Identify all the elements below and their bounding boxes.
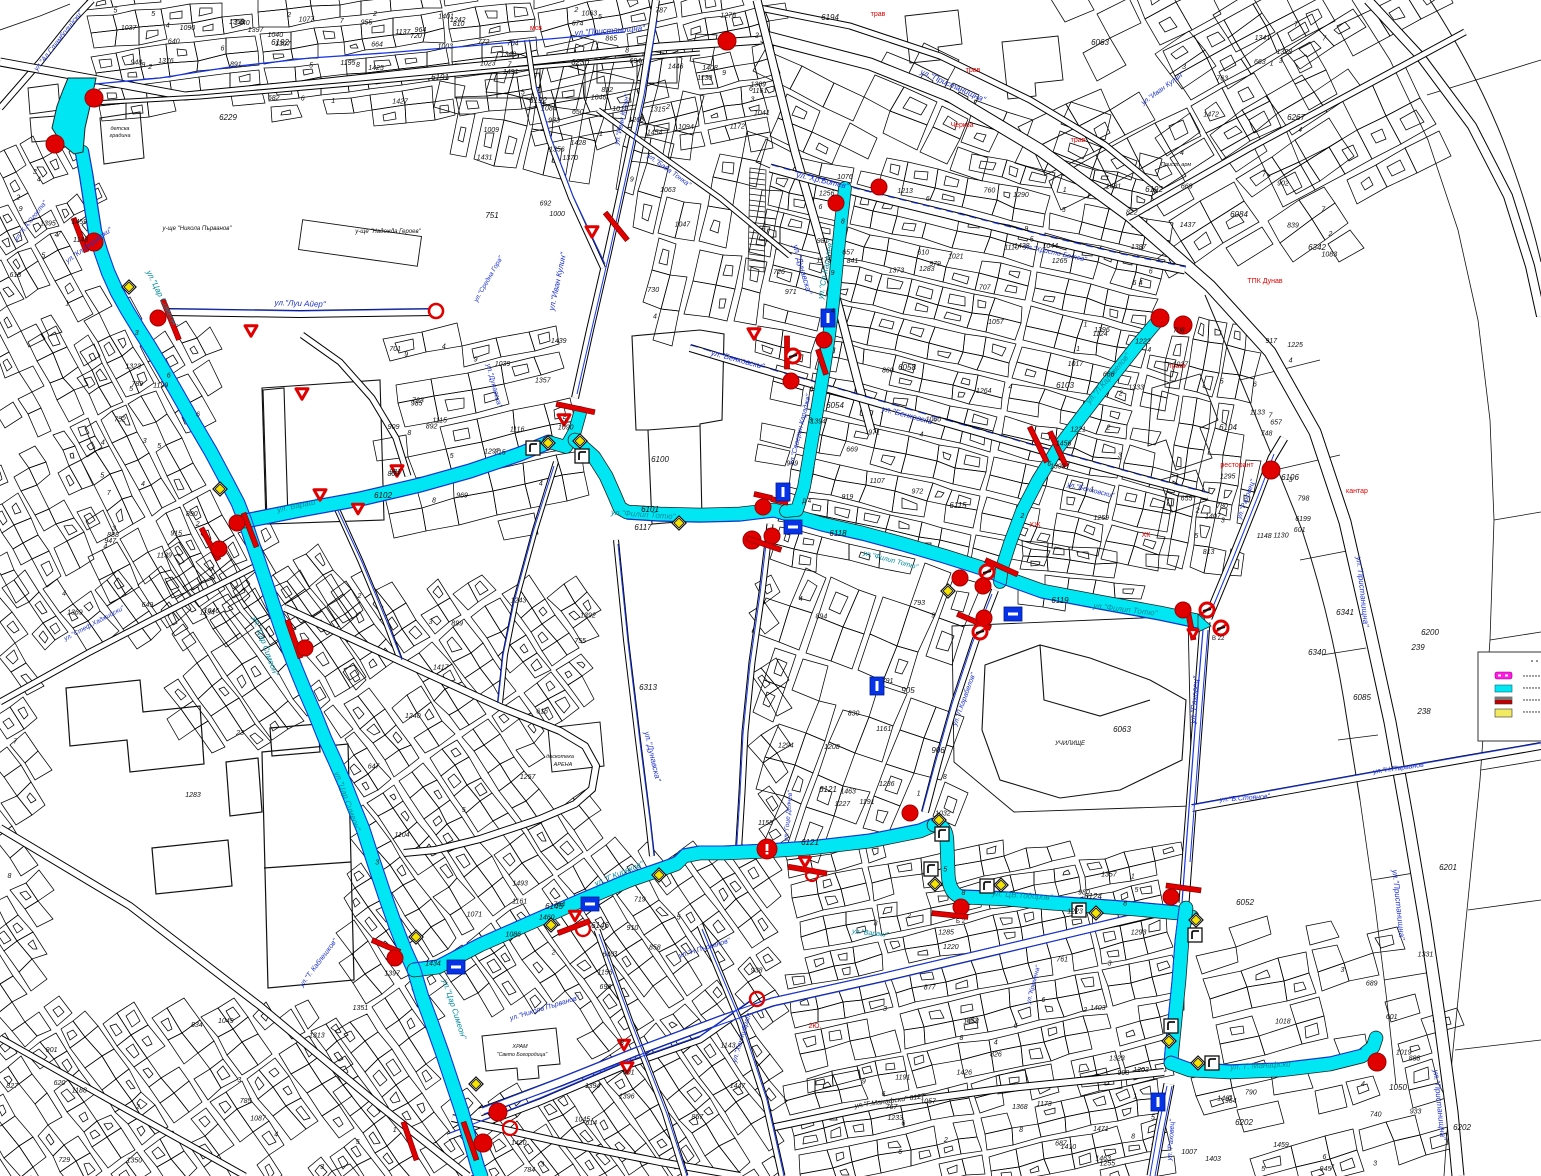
svg-text:8: 8 <box>407 430 411 437</box>
svg-text:8: 8 <box>432 497 436 504</box>
svg-text:5: 5 <box>309 63 313 70</box>
svg-text:1057: 1057 <box>988 319 1005 326</box>
svg-text:1133: 1133 <box>1250 410 1265 417</box>
svg-text:933: 933 <box>1410 1108 1422 1115</box>
svg-text:1143: 1143 <box>73 237 88 244</box>
svg-text:1397: 1397 <box>384 970 401 977</box>
svg-text:3: 3 <box>33 169 37 176</box>
svg-text:4: 4 <box>442 343 446 350</box>
svg-text:1401: 1401 <box>438 13 454 20</box>
svg-text:1063: 1063 <box>660 187 676 194</box>
svg-text:772: 772 <box>478 39 490 46</box>
svg-text:1431: 1431 <box>477 154 493 161</box>
svg-text:1348: 1348 <box>500 51 516 58</box>
svg-text:1173: 1173 <box>1037 1101 1052 1108</box>
svg-text:650: 650 <box>572 109 584 116</box>
svg-text:1191: 1191 <box>859 799 874 806</box>
svg-text:6202: 6202 <box>1235 1118 1253 1127</box>
svg-text:6: 6 <box>926 196 930 203</box>
svg-text:707: 707 <box>979 285 992 292</box>
svg-text:798: 798 <box>1298 495 1310 502</box>
svg-text:1394: 1394 <box>585 1083 601 1090</box>
svg-text:"Свето Богородица": "Свето Богородица" <box>497 1052 549 1058</box>
svg-text:6: 6 <box>1253 382 1257 389</box>
svg-text:4: 4 <box>62 591 66 598</box>
svg-text:1018: 1018 <box>1275 1019 1291 1026</box>
svg-text:760: 760 <box>984 187 996 194</box>
svg-text:8: 8 <box>620 1040 624 1047</box>
svg-text:4: 4 <box>101 440 105 447</box>
svg-text:901: 901 <box>46 1047 58 1054</box>
svg-text:917: 917 <box>1265 338 1278 345</box>
svg-text:1130: 1130 <box>697 75 712 82</box>
svg-text:1293: 1293 <box>1131 930 1147 937</box>
svg-text:1158: 1158 <box>758 820 773 827</box>
svg-text:трав: трав <box>871 11 886 18</box>
svg-text:858: 858 <box>649 944 661 951</box>
svg-text:5: 5 <box>521 90 525 97</box>
svg-text:6102: 6102 <box>374 491 392 500</box>
svg-text:1259: 1259 <box>1093 515 1109 522</box>
svg-text:1264: 1264 <box>976 388 992 395</box>
svg-text:1221: 1221 <box>1070 426 1086 433</box>
svg-text:1294: 1294 <box>778 742 794 749</box>
svg-text:901: 901 <box>623 1069 635 1076</box>
svg-text:669: 669 <box>1181 183 1193 190</box>
svg-text:мсв: мсв <box>530 25 542 32</box>
svg-text:964: 964 <box>415 27 427 34</box>
svg-text:614: 614 <box>585 1120 597 1127</box>
svg-text:6: 6 <box>1149 269 1153 276</box>
svg-text:1104: 1104 <box>394 832 409 839</box>
svg-text:1134: 1134 <box>200 610 215 617</box>
svg-text:1358: 1358 <box>229 19 245 26</box>
svg-text:1439: 1439 <box>551 338 567 345</box>
svg-text:6054: 6054 <box>826 401 844 410</box>
svg-text:5: 5 <box>100 473 104 480</box>
svg-text:1023: 1023 <box>480 60 496 67</box>
svg-text:3: 3 <box>540 1161 544 1168</box>
svg-text:899: 899 <box>451 620 463 627</box>
svg-text:980: 980 <box>1078 890 1090 897</box>
svg-text:3: 3 <box>751 96 755 103</box>
svg-text:852: 852 <box>967 1017 979 1024</box>
svg-text:981: 981 <box>389 469 401 476</box>
svg-text:1350: 1350 <box>127 1158 143 1165</box>
svg-text:764: 764 <box>553 901 565 908</box>
svg-text:1222: 1222 <box>1135 339 1151 346</box>
svg-text:6084: 6084 <box>1230 210 1248 219</box>
svg-text:6: 6 <box>220 46 224 53</box>
svg-text:9: 9 <box>831 270 835 277</box>
svg-text:1265: 1265 <box>1052 258 1068 265</box>
svg-text:1446: 1446 <box>668 64 684 71</box>
svg-text:1260: 1260 <box>628 117 644 124</box>
svg-text:1046: 1046 <box>591 95 607 102</box>
svg-text:1256: 1256 <box>819 191 835 198</box>
svg-text:1463: 1463 <box>840 788 856 795</box>
svg-text:6192: 6192 <box>1145 185 1163 194</box>
svg-text:689: 689 <box>1366 981 1378 988</box>
svg-text:2: 2 <box>1082 1007 1087 1014</box>
svg-text:4: 4 <box>141 481 145 488</box>
svg-text:971: 971 <box>868 429 880 436</box>
svg-text:998: 998 <box>1118 1070 1130 1077</box>
svg-text:2: 2 <box>1327 231 1332 238</box>
svg-text:1328: 1328 <box>1277 49 1293 56</box>
svg-text:5: 5 <box>1261 1166 1265 1173</box>
svg-text:938: 938 <box>751 968 763 975</box>
svg-text:839: 839 <box>1287 222 1299 229</box>
svg-text:664: 664 <box>371 41 383 48</box>
svg-text:1172: 1172 <box>730 124 745 131</box>
svg-text:785: 785 <box>240 1098 252 1105</box>
svg-text:740: 740 <box>1370 1112 1382 1119</box>
svg-text:3: 3 <box>808 417 812 424</box>
svg-text:1333: 1333 <box>1128 385 1144 392</box>
svg-text:2: 2 <box>573 7 578 14</box>
svg-text:6201: 6201 <box>1439 863 1457 872</box>
svg-text:1370: 1370 <box>562 155 578 162</box>
svg-text:6: 6 <box>1133 280 1137 287</box>
svg-text:1295: 1295 <box>1220 473 1236 480</box>
svg-text:1: 1 <box>917 790 921 797</box>
svg-text:9: 9 <box>19 206 23 213</box>
svg-text:1290: 1290 <box>1013 192 1029 199</box>
svg-text:1225: 1225 <box>1287 342 1303 349</box>
svg-text:720: 720 <box>410 33 422 40</box>
svg-text:5: 5 <box>1194 533 1198 540</box>
svg-text:1019: 1019 <box>1396 1049 1412 1056</box>
svg-text:2: 2 <box>551 950 556 957</box>
svg-text:1425: 1425 <box>368 65 384 72</box>
svg-text:6: 6 <box>196 412 200 419</box>
svg-text:6229: 6229 <box>219 113 237 122</box>
svg-text:890: 890 <box>186 511 198 518</box>
svg-text:В 22: В 22 <box>1212 636 1225 642</box>
svg-text:3: 3 <box>1373 1160 1377 1167</box>
svg-text:4: 4 <box>1147 347 1151 354</box>
svg-text:1438: 1438 <box>1014 243 1030 250</box>
svg-text:5: 5 <box>462 807 466 814</box>
svg-text:6: 6 <box>301 95 305 102</box>
svg-text:1240: 1240 <box>405 713 421 720</box>
svg-text:8: 8 <box>625 48 629 55</box>
svg-text:трав: трав <box>1071 137 1086 144</box>
svg-text:841: 841 <box>847 258 859 265</box>
svg-text:1161: 1161 <box>512 898 527 905</box>
svg-text:6052: 6052 <box>1236 898 1254 907</box>
svg-text:822: 822 <box>1126 209 1138 216</box>
svg-text:5: 5 <box>598 14 602 21</box>
svg-text:6230: 6230 <box>571 58 589 67</box>
svg-text:2: 2 <box>754 33 759 40</box>
svg-text:6104: 6104 <box>1219 423 1237 432</box>
svg-text:6313: 6313 <box>639 683 657 692</box>
svg-text:2: 2 <box>665 104 670 111</box>
svg-text:694: 694 <box>629 58 641 65</box>
svg-text:детска: детска <box>111 126 130 132</box>
svg-text:239: 239 <box>1410 643 1425 652</box>
svg-text:2: 2 <box>1106 424 1111 431</box>
svg-text:919: 919 <box>842 494 854 501</box>
svg-text:1233: 1233 <box>887 1115 903 1122</box>
svg-text:3: 3 <box>320 1164 324 1171</box>
svg-text:6: 6 <box>1041 997 1045 1004</box>
svg-text:ул."Луи Айер": ул."Луи Айер" <box>273 298 327 309</box>
svg-text:1057: 1057 <box>920 1099 937 1106</box>
svg-text:1227: 1227 <box>835 801 852 808</box>
svg-text:1426: 1426 <box>956 1069 972 1076</box>
svg-text:у-ще "Надежда Героев": у-ще "Надежда Героев" <box>354 229 421 235</box>
svg-text:5: 5 <box>677 914 681 921</box>
svg-text:2: 2 <box>1195 508 1200 515</box>
svg-text:3: 3 <box>237 1077 241 1084</box>
svg-text:1090: 1090 <box>558 424 574 431</box>
svg-text:1139: 1139 <box>157 553 172 560</box>
svg-text:891: 891 <box>230 62 242 69</box>
svg-text:2: 2 <box>1118 390 1123 397</box>
svg-text:3: 3 <box>375 860 379 867</box>
svg-text:238: 238 <box>1416 707 1431 716</box>
svg-text:5: 5 <box>356 1139 360 1146</box>
svg-text:1223: 1223 <box>1067 908 1083 915</box>
svg-text:6202: 6202 <box>1453 1123 1471 1132</box>
svg-text:1: 1 <box>65 301 69 308</box>
svg-text:948: 948 <box>130 60 142 67</box>
svg-text:657: 657 <box>842 250 855 257</box>
svg-text:1307: 1307 <box>275 41 292 48</box>
svg-text:1060: 1060 <box>926 416 942 423</box>
svg-text:2: 2 <box>906 913 911 920</box>
svg-text:905: 905 <box>901 686 915 695</box>
svg-text:1427: 1427 <box>392 99 409 106</box>
svg-text:2: 2 <box>135 1104 140 1111</box>
svg-text:1434: 1434 <box>425 961 441 968</box>
svg-text:6: 6 <box>1228 1095 1232 1102</box>
svg-text:6101: 6101 <box>641 505 659 514</box>
svg-text:1: 1 <box>1090 487 1094 494</box>
svg-text:4: 4 <box>653 314 657 321</box>
svg-text:3: 3 <box>613 951 617 958</box>
svg-text:601: 601 <box>1294 527 1306 534</box>
svg-text:Прист. арм: Прист. арм <box>1161 162 1191 168</box>
svg-text:3: 3 <box>429 619 433 626</box>
svg-text:4: 4 <box>1008 384 1012 391</box>
svg-text:4: 4 <box>831 308 835 315</box>
svg-text:8: 8 <box>1019 1127 1023 1134</box>
svg-text:1315: 1315 <box>650 107 666 114</box>
svg-text:2: 2 <box>356 593 361 600</box>
svg-text:4: 4 <box>37 176 41 183</box>
svg-text:6200: 6200 <box>1421 628 1439 637</box>
svg-text:708: 708 <box>1173 328 1185 335</box>
svg-text:1130: 1130 <box>1274 532 1289 539</box>
svg-text:1032: 1032 <box>935 811 951 818</box>
svg-text:755: 755 <box>574 638 586 645</box>
svg-text:674: 674 <box>572 20 584 27</box>
svg-text:1472: 1472 <box>1203 112 1219 119</box>
svg-text:1285: 1285 <box>938 929 954 936</box>
svg-text:827: 827 <box>6 1083 19 1090</box>
svg-text:1039: 1039 <box>495 361 511 368</box>
svg-text:3: 3 <box>1108 961 1112 968</box>
svg-text:649: 649 <box>142 602 154 609</box>
svg-text:830: 830 <box>848 711 860 718</box>
svg-text:1063: 1063 <box>582 10 598 17</box>
svg-text:дискотека: дискотека <box>546 754 574 760</box>
svg-text:1175: 1175 <box>816 258 831 265</box>
svg-text:1188: 1188 <box>72 1088 87 1095</box>
svg-text:1208: 1208 <box>824 744 840 751</box>
svg-text:ТПК Дунав: ТПК Дунав <box>1247 278 1282 285</box>
svg-text:640: 640 <box>168 39 180 46</box>
svg-text:1403: 1403 <box>1090 1005 1106 1012</box>
svg-text:1137: 1137 <box>395 29 411 36</box>
svg-text:704: 704 <box>507 41 519 48</box>
svg-text:1220: 1220 <box>943 944 959 951</box>
svg-text:1369: 1369 <box>67 610 83 617</box>
svg-text:696: 696 <box>600 984 612 991</box>
svg-text:2: 2 <box>1019 513 1024 520</box>
svg-text:1410: 1410 <box>1061 1144 1077 1151</box>
svg-text:3: 3 <box>1182 64 1186 71</box>
svg-text:657: 657 <box>1270 419 1283 426</box>
svg-text:971: 971 <box>785 289 797 296</box>
svg-text:1007: 1007 <box>1181 1149 1198 1156</box>
svg-text:1408: 1408 <box>702 65 718 72</box>
svg-text:1351: 1351 <box>353 1005 369 1012</box>
svg-text:1323: 1323 <box>125 363 141 370</box>
svg-text:6341: 6341 <box>1336 608 1354 617</box>
svg-text:9: 9 <box>404 351 408 358</box>
svg-text:8: 8 <box>943 774 947 781</box>
svg-text:723: 723 <box>412 397 424 404</box>
svg-text:1398: 1398 <box>1050 464 1066 471</box>
svg-text:6192: 6192 <box>529 96 547 105</box>
svg-text:4: 4 <box>539 481 543 488</box>
svg-text:1323: 1323 <box>1109 1055 1125 1062</box>
svg-text:1396: 1396 <box>619 1094 635 1101</box>
svg-text:857: 857 <box>692 1114 705 1121</box>
svg-text:1437: 1437 <box>1180 222 1197 229</box>
svg-text:790: 790 <box>1245 1089 1257 1096</box>
svg-text:8: 8 <box>1123 900 1127 907</box>
svg-text:6100: 6100 <box>651 455 669 464</box>
svg-text:1017: 1017 <box>1068 361 1085 368</box>
svg-text:6: 6 <box>1323 1154 1327 1161</box>
svg-text:1011: 1011 <box>612 106 627 113</box>
svg-text:4: 4 <box>1139 280 1143 287</box>
svg-text:692: 692 <box>540 201 552 208</box>
svg-text:730: 730 <box>647 287 659 294</box>
svg-text:9: 9 <box>931 613 935 620</box>
svg-text:23: 23 <box>235 730 244 737</box>
svg-text:865: 865 <box>605 35 617 42</box>
svg-text:8: 8 <box>959 1035 963 1042</box>
svg-text:9: 9 <box>862 1078 866 1085</box>
svg-text:1: 1 <box>1131 873 1135 880</box>
svg-text:902: 902 <box>1277 180 1289 187</box>
svg-text:1: 1 <box>393 1127 397 1134</box>
svg-text:791: 791 <box>882 678 894 685</box>
svg-text:ХРАМ: ХРАМ <box>511 1044 528 1050</box>
svg-text:729: 729 <box>58 1157 70 1164</box>
svg-text:5: 5 <box>151 11 155 18</box>
svg-text:1397: 1397 <box>248 27 265 34</box>
svg-text:4: 4 <box>1298 127 1302 134</box>
svg-text:6: 6 <box>749 86 753 93</box>
svg-text:1403: 1403 <box>1205 1156 1221 1163</box>
svg-text:1459: 1459 <box>71 219 87 226</box>
svg-text:Д 4: Д 4 <box>802 499 812 505</box>
svg-text:1203: 1203 <box>1133 1067 1149 1074</box>
svg-text:784: 784 <box>523 1167 535 1174</box>
svg-text:1076: 1076 <box>837 174 853 181</box>
svg-text:767: 767 <box>886 1104 899 1111</box>
svg-text:1: 1 <box>599 131 603 138</box>
svg-text:1341: 1341 <box>1255 35 1271 42</box>
svg-text:3: 3 <box>883 1006 887 1013</box>
svg-text:1447: 1447 <box>730 1083 747 1090</box>
svg-text:810: 810 <box>453 21 465 28</box>
svg-text:2: 2 <box>943 1137 948 1144</box>
svg-text:4: 4 <box>166 22 170 29</box>
svg-text:4: 4 <box>920 431 924 438</box>
svg-text:8: 8 <box>961 890 965 897</box>
svg-text:834: 834 <box>191 1022 203 1029</box>
svg-text:6: 6 <box>1014 1023 1018 1030</box>
svg-text:1143: 1143 <box>720 1042 735 1049</box>
svg-text:1491: 1491 <box>503 69 519 76</box>
svg-text:1084: 1084 <box>541 106 557 113</box>
svg-text:1044: 1044 <box>1042 243 1058 250</box>
svg-text:1417: 1417 <box>433 665 450 672</box>
svg-text:1: 1 <box>1133 1094 1137 1101</box>
svg-text:4: 4 <box>1180 150 1184 157</box>
svg-text:6058: 6058 <box>898 363 916 372</box>
svg-text:6121: 6121 <box>801 838 819 847</box>
svg-text:5: 5 <box>450 453 454 460</box>
svg-text:1420: 1420 <box>511 1140 527 1147</box>
svg-text:910: 910 <box>627 925 639 932</box>
svg-text:5: 5 <box>562 416 566 423</box>
svg-text:1357: 1357 <box>1101 872 1118 879</box>
svg-text:1116: 1116 <box>510 427 525 434</box>
svg-text:1050: 1050 <box>1389 1083 1407 1092</box>
svg-text:1: 1 <box>1076 346 1080 353</box>
svg-text:3: 3 <box>1279 58 1283 65</box>
svg-text:1493: 1493 <box>512 881 528 888</box>
svg-text:5: 5 <box>1030 237 1034 244</box>
svg-text:8: 8 <box>7 873 11 880</box>
svg-text:1161: 1161 <box>876 726 891 733</box>
svg-text:1278: 1278 <box>720 13 736 20</box>
svg-text:6191: 6191 <box>431 73 449 82</box>
svg-text:3: 3 <box>1289 477 1293 484</box>
svg-text:610: 610 <box>917 250 929 257</box>
svg-text:715: 715 <box>494 449 506 456</box>
svg-text:4: 4 <box>1361 1081 1365 1088</box>
svg-text:1392: 1392 <box>580 613 596 620</box>
svg-text:1094: 1094 <box>678 124 694 131</box>
svg-text:5: 5 <box>1220 379 1224 386</box>
svg-text:1313: 1313 <box>309 1032 325 1039</box>
svg-text:999: 999 <box>786 461 798 468</box>
svg-text:1087: 1087 <box>250 1115 267 1122</box>
svg-text:Б 2: Б 2 <box>956 919 966 925</box>
svg-text:2Ю.: 2Ю. <box>809 1023 822 1030</box>
